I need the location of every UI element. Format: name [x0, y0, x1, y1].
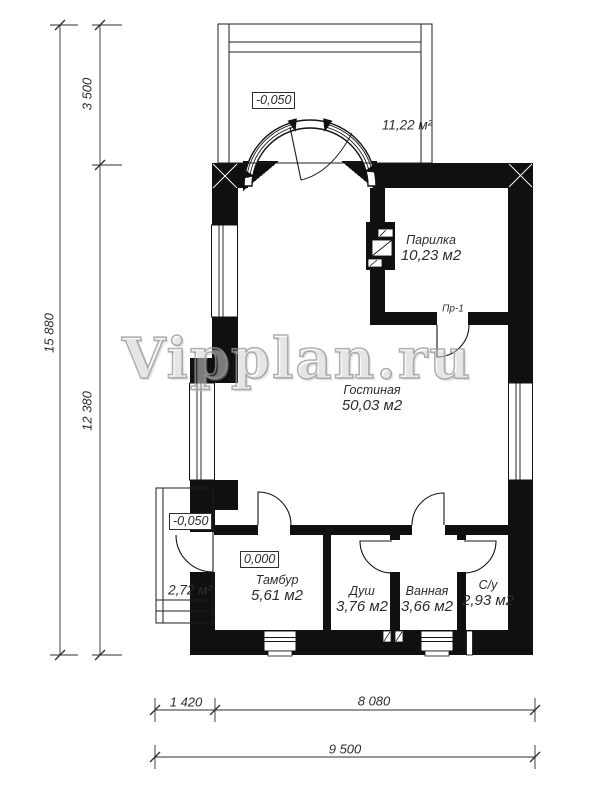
room-name-wc: С/у	[462, 578, 514, 592]
room-name-bath: Ванная	[401, 584, 453, 598]
stove-icon	[366, 222, 395, 270]
window-left-upper	[212, 225, 238, 317]
dimension-lines-group	[50, 20, 540, 769]
elevation-terrace: -0,050	[252, 92, 295, 109]
room-area-living: 50,03 м2	[342, 397, 402, 414]
dim-left-outer-total: 15 880	[42, 313, 57, 353]
watermark: Vipplan.ru	[122, 330, 472, 388]
sauna-door-tag: Пр-1	[441, 304, 465, 315]
room-label-sauna: Парилка 10,23 м2	[401, 233, 461, 264]
room-label-shower: Душ 3,76 м2	[336, 584, 388, 615]
door-shower	[360, 541, 392, 573]
room-area-sauna: 10,23 м2	[401, 247, 461, 264]
room-area-bath: 3,66 м2	[401, 598, 453, 615]
terrace-area-label: 11,22 м²	[382, 118, 432, 133]
dim-left-top: 3 500	[80, 78, 95, 111]
door-tambour-living	[258, 492, 291, 525]
porch-area-label: 2,72 м²	[168, 583, 212, 598]
room-area-tambour: 5,61 м2	[251, 587, 303, 604]
door-bath-living	[412, 493, 444, 525]
room-label-bath: Ванная 3,66 м2	[401, 584, 453, 615]
window-bottom-tambour	[264, 631, 296, 656]
dim-left-bottom: 12 380	[80, 391, 95, 431]
room-label-wc: С/у 2,93 м2	[462, 578, 514, 609]
room-label-tambour: Тамбур 5,61 м2	[251, 573, 303, 604]
room-name-sauna: Парилка	[401, 233, 461, 247]
room-name-shower: Душ	[336, 584, 388, 598]
dim-bottom-total: 9 500	[329, 742, 362, 757]
room-name-living: Гостиная	[342, 383, 402, 397]
room-area-shower: 3,76 м2	[336, 598, 388, 615]
dim-bottom-porch: 1 420	[170, 695, 203, 710]
wc-vent-slot	[467, 631, 473, 655]
door-wc	[464, 541, 496, 573]
window-left-lower	[190, 383, 215, 480]
room-area-wc: 2,93 м2	[462, 592, 514, 609]
room-name-tambour: Тамбур	[251, 573, 303, 587]
dim-bottom-house: 8 080	[358, 694, 391, 709]
door-porch	[176, 535, 213, 572]
window-right	[509, 383, 533, 480]
elevation-porch: -0,050	[169, 513, 212, 530]
bay-window-group	[241, 118, 377, 186]
room-label-living: Гостиная 50,03 м2	[342, 383, 402, 414]
elevation-entry-floor: 0,000	[240, 551, 279, 568]
floor-plan-canvas: Vipplan.ru -0,050 11,22 м² Парилка 10,23…	[0, 0, 600, 788]
terrace-group	[218, 24, 432, 163]
window-bottom-bathroom	[421, 631, 453, 656]
